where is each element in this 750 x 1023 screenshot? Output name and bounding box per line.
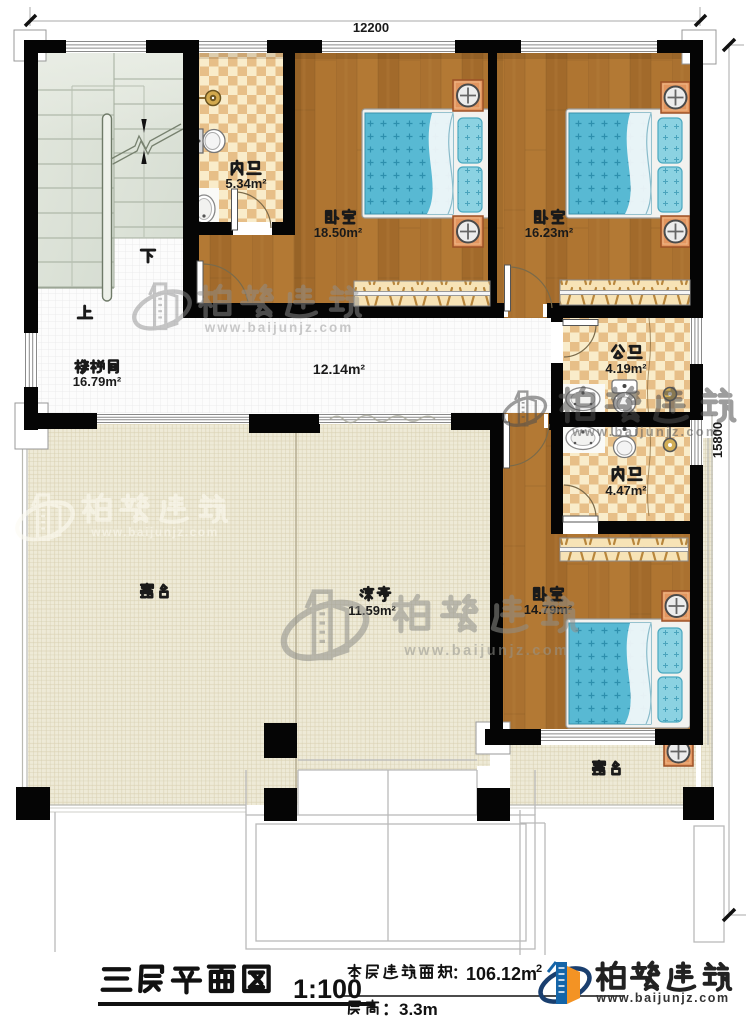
svg-text:www.baijunjz.com: www.baijunjz.com xyxy=(204,320,354,335)
svg-text:：3.3m: ：3.3m xyxy=(382,1000,438,1019)
svg-text:16.23m²: 16.23m² xyxy=(525,225,574,240)
svg-text:：: ： xyxy=(452,965,467,982)
svg-text:18.50m²: 18.50m² xyxy=(314,225,363,240)
svg-text:www.baijunjz.com: www.baijunjz.com xyxy=(571,424,719,439)
svg-text:16.79m²: 16.79m² xyxy=(73,374,122,389)
svg-text:12.14m²: 12.14m² xyxy=(313,361,365,377)
svg-text:106.12m: 106.12m xyxy=(466,964,537,984)
svg-text:www.baijunjz.com: www.baijunjz.com xyxy=(90,525,219,539)
svg-text:www.baijunjz.com: www.baijunjz.com xyxy=(595,991,729,1005)
svg-text:15800: 15800 xyxy=(710,422,725,458)
svg-text:www.baijunjz.com: www.baijunjz.com xyxy=(403,643,569,659)
svg-text:4.47m²: 4.47m² xyxy=(605,483,647,498)
svg-text:12200: 12200 xyxy=(353,20,389,35)
svg-text:2: 2 xyxy=(536,963,542,975)
svg-text:4.19m²: 4.19m² xyxy=(605,361,647,376)
svg-text:5.34m²: 5.34m² xyxy=(225,176,267,191)
svg-text:1:100: 1:100 xyxy=(293,974,362,1004)
